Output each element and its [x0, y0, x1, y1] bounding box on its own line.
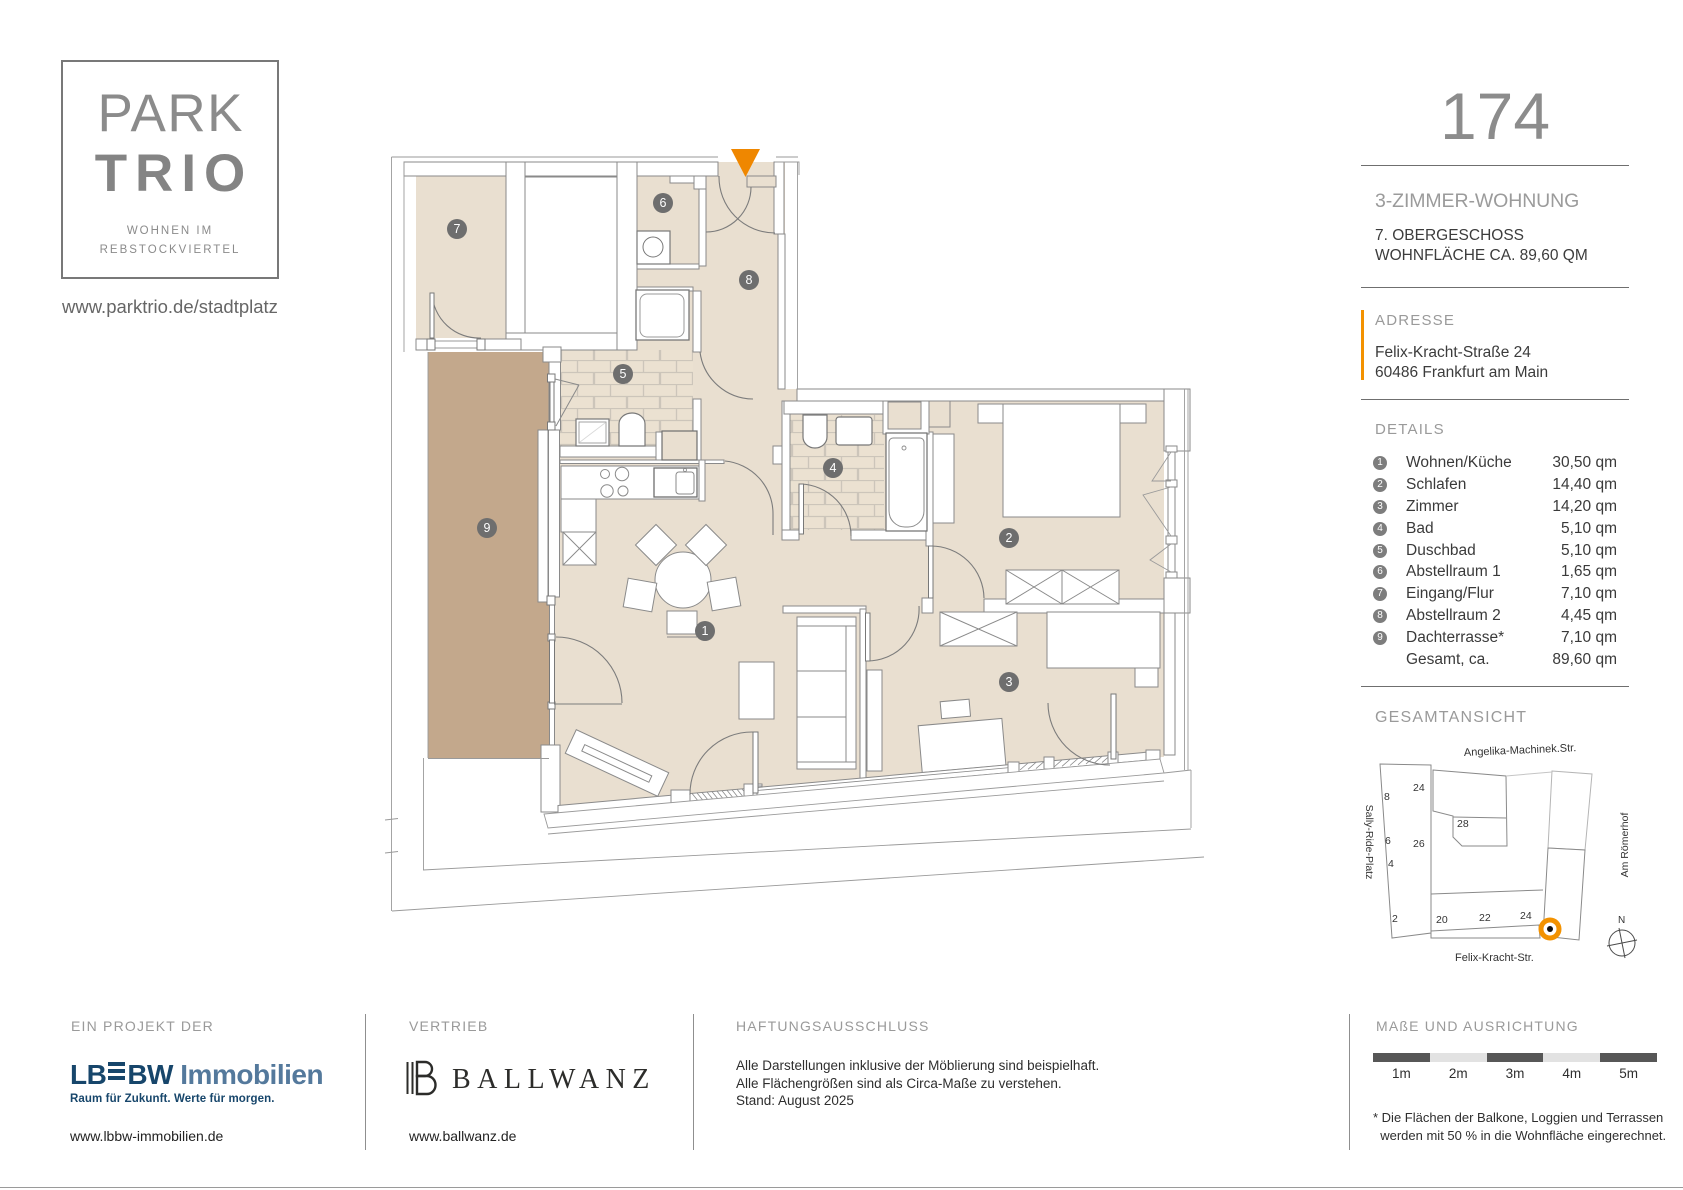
svg-text:BALLWANZ: BALLWANZ [452, 1064, 656, 1095]
svg-text:2: 2 [1006, 531, 1013, 545]
svg-text:Sally-Ride-Platz: Sally-Ride-Platz [1363, 805, 1375, 880]
svg-text:24: 24 [1520, 910, 1532, 922]
svg-text:8: 8 [1384, 791, 1390, 803]
svg-text:26: 26 [1413, 838, 1425, 850]
svg-text:4: 4 [830, 461, 837, 475]
svg-text:24: 24 [1413, 782, 1425, 794]
svg-text:Felix-Kracht-Str.: Felix-Kracht-Str. [1455, 952, 1534, 964]
svg-text:Am Römerhof: Am Römerhof [1619, 813, 1631, 878]
svg-text:8: 8 [746, 273, 753, 287]
svg-text:28: 28 [1457, 818, 1469, 830]
svg-text:1: 1 [702, 624, 709, 638]
svg-text:9: 9 [484, 521, 491, 535]
svg-text:5: 5 [620, 367, 627, 381]
svg-text:3: 3 [1006, 675, 1013, 689]
svg-text:20: 20 [1436, 914, 1448, 926]
svg-text:4: 4 [1388, 858, 1394, 870]
svg-text:2: 2 [1392, 913, 1398, 925]
svg-text:6: 6 [660, 196, 667, 210]
svg-text:6: 6 [1385, 835, 1391, 847]
svg-text:7: 7 [454, 222, 461, 236]
svg-text:Angelika-Machinek.Str.: Angelika-Machinek.Str. [1464, 742, 1577, 759]
svg-text:22: 22 [1479, 912, 1491, 924]
svg-text:N: N [1618, 915, 1625, 926]
